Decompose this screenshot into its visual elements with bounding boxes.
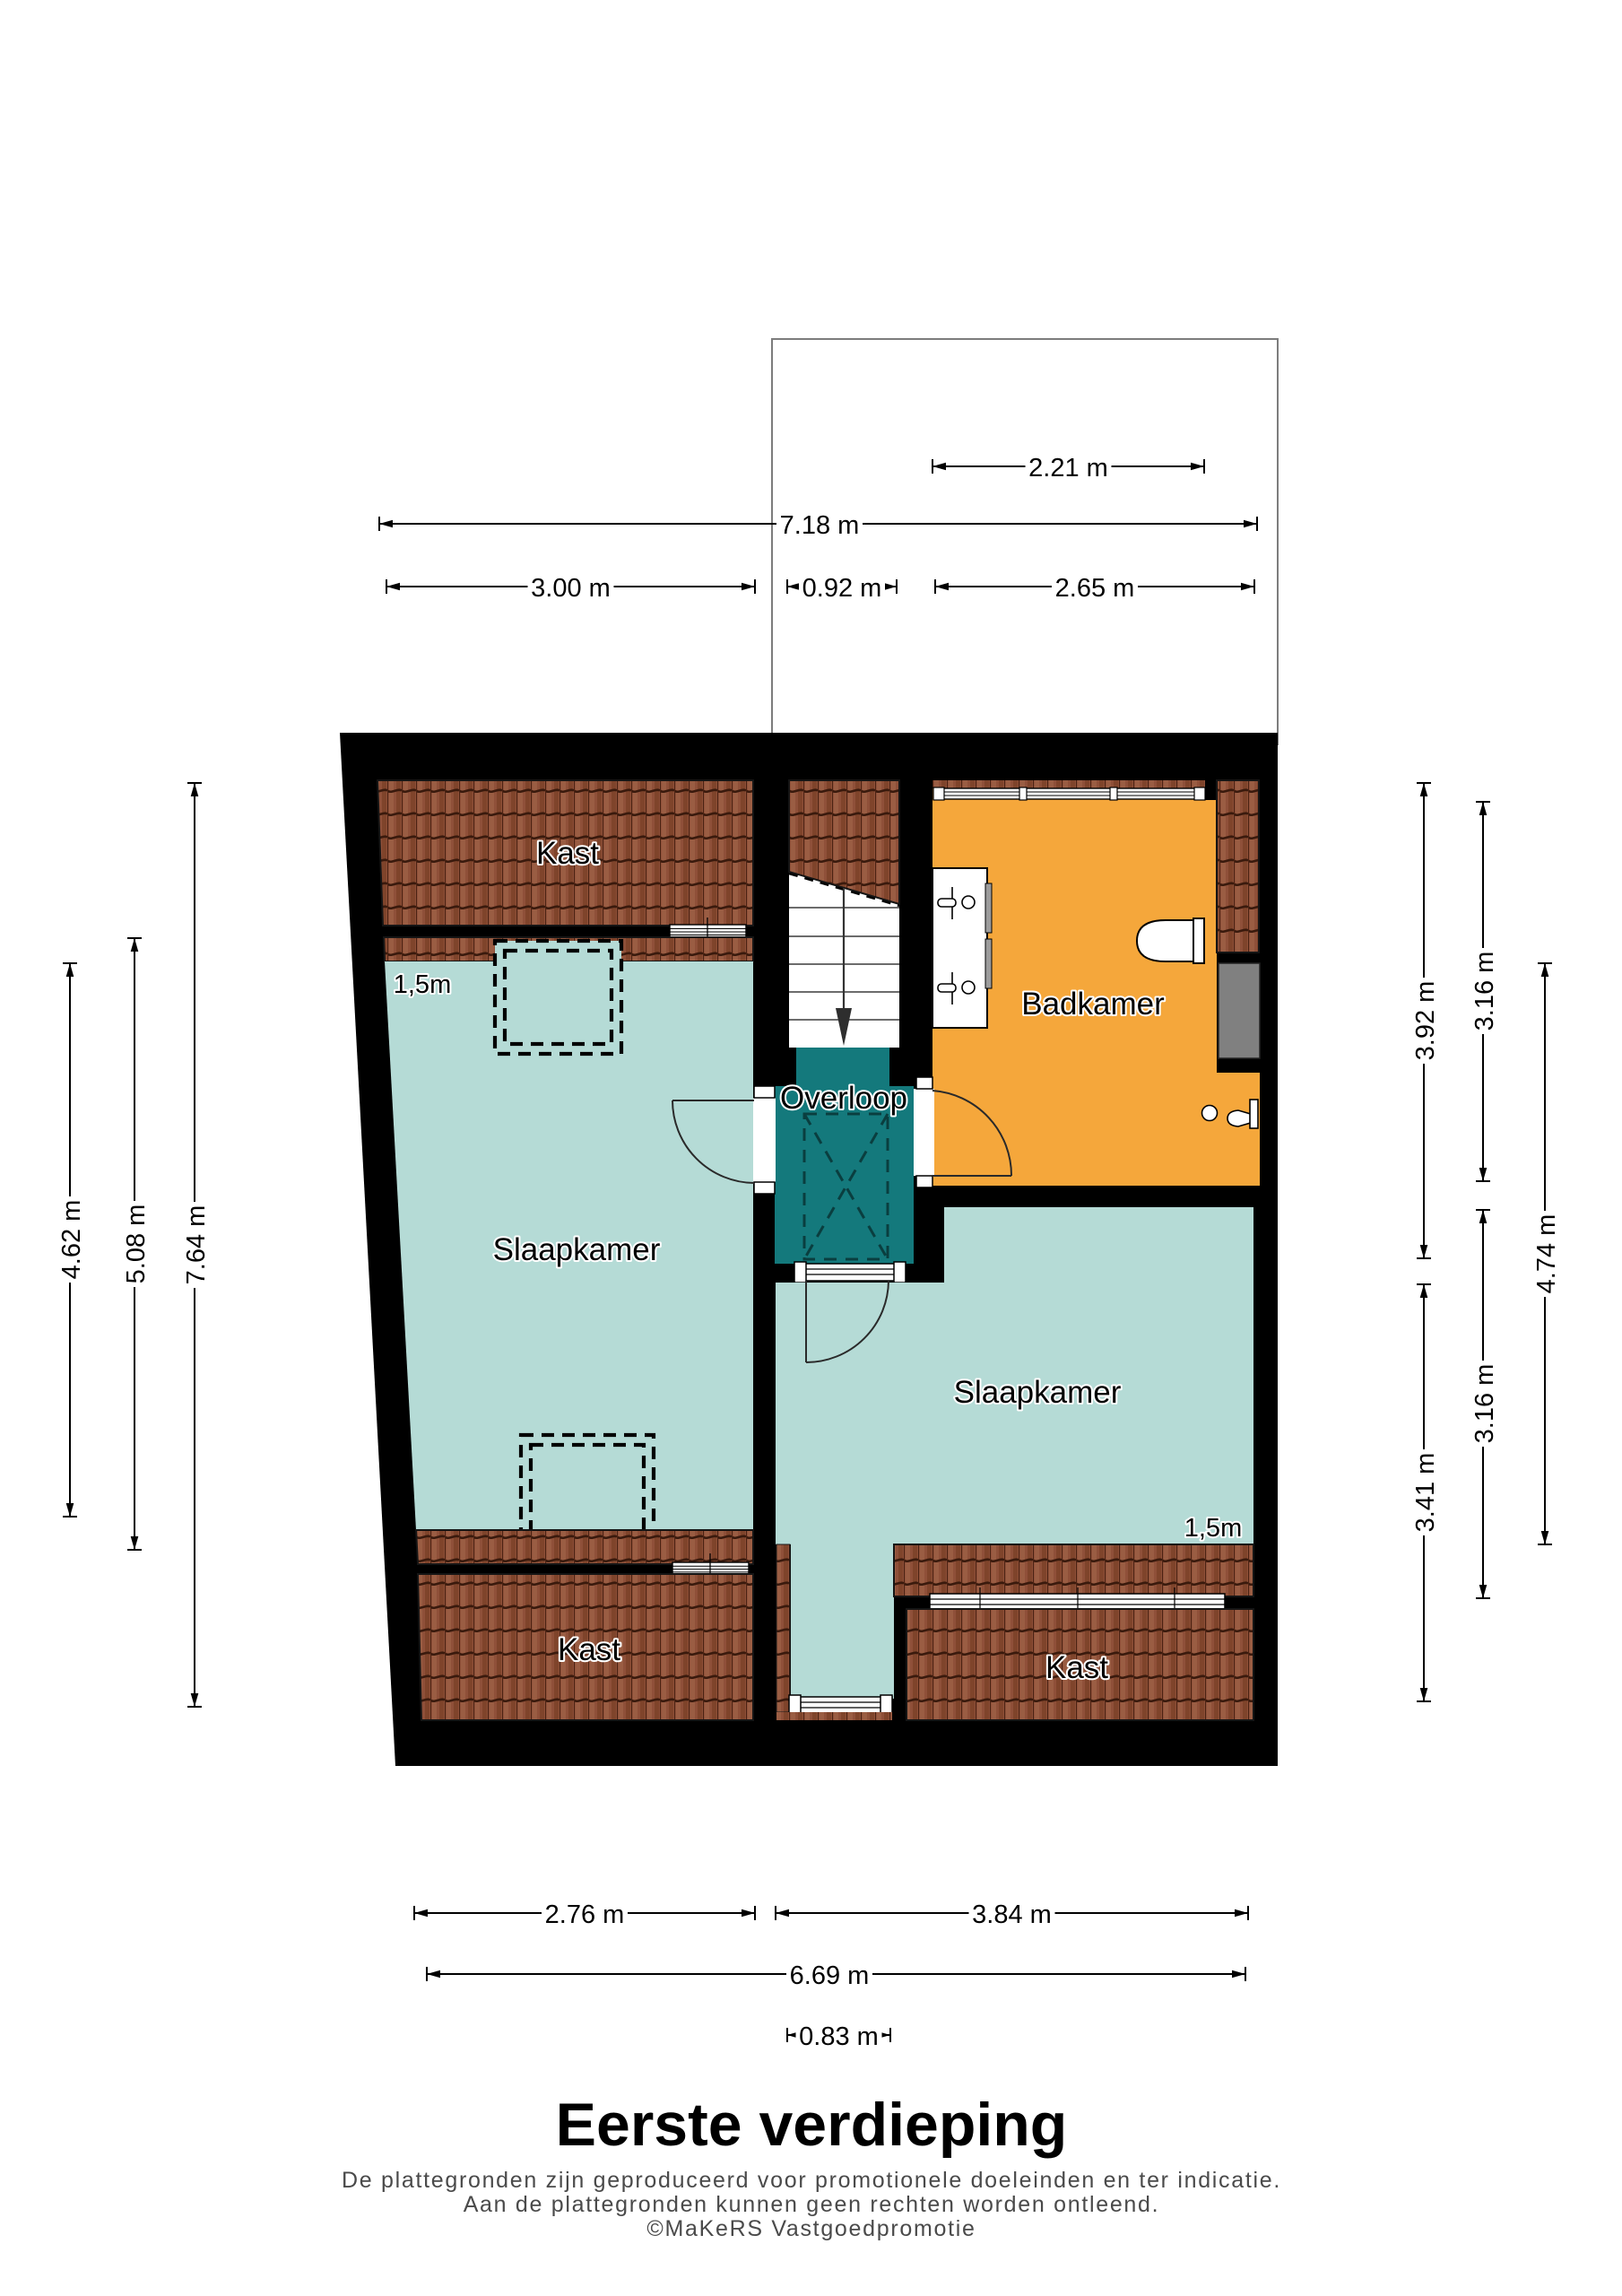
svg-text:7.18 m: 7.18 m bbox=[780, 511, 860, 540]
svg-text:Aan de plattegronden kunnen ge: Aan de plattegronden kunnen geen rechten… bbox=[464, 2192, 1160, 2217]
svg-text:Badkamer: Badkamer bbox=[1021, 987, 1165, 1022]
svg-text:Kast: Kast bbox=[558, 1632, 620, 1667]
svg-text:3.92 m: 3.92 m bbox=[1411, 981, 1440, 1061]
svg-text:3.16 m: 3.16 m bbox=[1470, 1364, 1499, 1444]
svg-text:4.62 m: 4.62 m bbox=[57, 1200, 86, 1280]
svg-text:2.65 m: 2.65 m bbox=[1055, 574, 1135, 603]
svg-text:Kast: Kast bbox=[1045, 1650, 1108, 1685]
svg-text:3.84 m: 3.84 m bbox=[972, 1900, 1052, 1929]
svg-text:Eerste verdieping: Eerste verdieping bbox=[556, 2091, 1068, 2159]
svg-text:4.74 m: 4.74 m bbox=[1532, 1214, 1561, 1294]
svg-text:3.16 m: 3.16 m bbox=[1470, 952, 1499, 1031]
svg-text:3.41 m: 3.41 m bbox=[1411, 1453, 1440, 1533]
svg-text:6.69 m: 6.69 m bbox=[790, 1961, 870, 1990]
svg-text:1,5m: 1,5m bbox=[1184, 1514, 1242, 1543]
svg-text:0.83 m: 0.83 m bbox=[799, 2022, 879, 2051]
svg-text:5.08 m: 5.08 m bbox=[122, 1205, 151, 1284]
svg-text:3.00 m: 3.00 m bbox=[531, 574, 611, 603]
svg-text:2.21 m: 2.21 m bbox=[1028, 454, 1108, 483]
svg-text:Kast: Kast bbox=[536, 836, 599, 871]
svg-text:Slaapkamer: Slaapkamer bbox=[493, 1232, 661, 1267]
svg-text:1,5m: 1,5m bbox=[394, 970, 451, 999]
svg-text:Slaapkamer: Slaapkamer bbox=[954, 1375, 1122, 1410]
svg-text:2.76 m: 2.76 m bbox=[545, 1900, 625, 1929]
svg-text:©MaKeRS Vastgoedpromotie: ©MaKeRS Vastgoedpromotie bbox=[646, 2216, 976, 2241]
svg-text:0.92 m: 0.92 m bbox=[802, 574, 882, 603]
svg-text:7.64 m: 7.64 m bbox=[182, 1205, 211, 1285]
svg-text:Overloop: Overloop bbox=[780, 1081, 907, 1116]
svg-text:De plattegronden zijn geproduc: De plattegronden zijn geproduceerd voor … bbox=[342, 2168, 1281, 2193]
